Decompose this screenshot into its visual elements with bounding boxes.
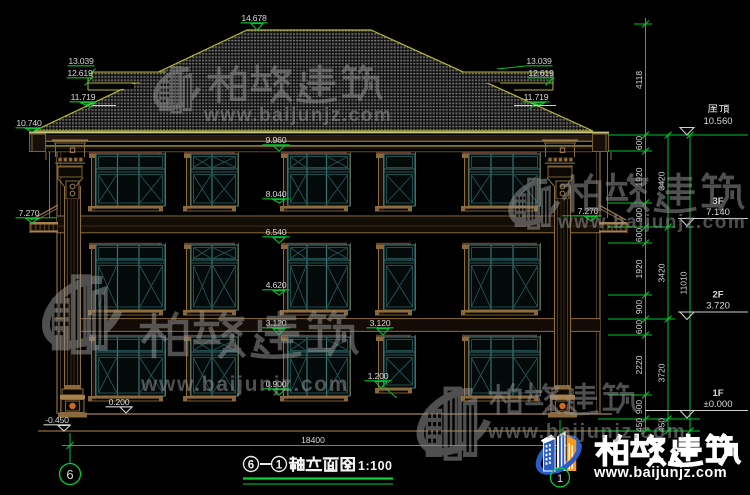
svg-text:7.270: 7.270	[19, 208, 40, 218]
svg-text:8.040: 8.040	[266, 189, 287, 199]
svg-text:600: 600	[634, 320, 644, 334]
svg-text:1920: 1920	[634, 259, 644, 278]
svg-text:0.200: 0.200	[109, 397, 130, 407]
svg-text:1F: 1F	[712, 388, 723, 399]
svg-text:11.719: 11.719	[71, 92, 96, 102]
svg-text:10.560: 10.560	[703, 116, 732, 127]
svg-text:900: 900	[634, 300, 644, 314]
svg-text:13.039: 13.039	[526, 56, 552, 66]
svg-text:12.619: 12.619	[528, 68, 554, 78]
svg-text:1.200: 1.200	[368, 371, 389, 381]
svg-text:10.740: 10.740	[16, 118, 42, 128]
svg-text:6: 6	[66, 467, 73, 482]
svg-text:3.720: 3.720	[706, 301, 730, 312]
svg-text:11.719: 11.719	[524, 92, 549, 102]
svg-text:2F: 2F	[712, 290, 723, 301]
svg-text:4118: 4118	[634, 71, 644, 90]
svg-text:www.baijunjz.com: www.baijunjz.com	[593, 465, 727, 481]
svg-text:4.620: 4.620	[266, 280, 287, 290]
svg-text:1: 1	[276, 460, 283, 472]
svg-text:3720: 3720	[657, 363, 667, 382]
svg-text:14.678: 14.678	[241, 13, 267, 23]
svg-text:-0.450: -0.450	[45, 415, 69, 425]
svg-text:13.039: 13.039	[68, 56, 94, 66]
svg-text:3.120: 3.120	[370, 318, 391, 328]
svg-text:18400: 18400	[301, 435, 325, 445]
svg-text:3420: 3420	[657, 263, 667, 282]
svg-text:±0.000: ±0.000	[704, 399, 733, 410]
svg-text:1:100: 1:100	[358, 459, 392, 473]
svg-text:www.baijunjz.com: www.baijunjz.com	[203, 105, 392, 126]
svg-text:6.540: 6.540	[266, 227, 287, 237]
svg-text:1: 1	[557, 473, 563, 485]
svg-text:www.baijunjz.com: www.baijunjz.com	[557, 212, 746, 233]
svg-text:12.619: 12.619	[67, 68, 93, 78]
svg-text:2220: 2220	[634, 355, 644, 374]
svg-text:11010: 11010	[679, 271, 689, 294]
svg-text:www.baijunjz.com: www.baijunjz.com	[487, 421, 686, 443]
svg-text:9.960: 9.960	[266, 135, 287, 145]
svg-text:600: 600	[634, 136, 644, 150]
svg-text:www.baijunjz.com: www.baijunjz.com	[140, 373, 349, 396]
svg-text:6: 6	[248, 460, 254, 472]
